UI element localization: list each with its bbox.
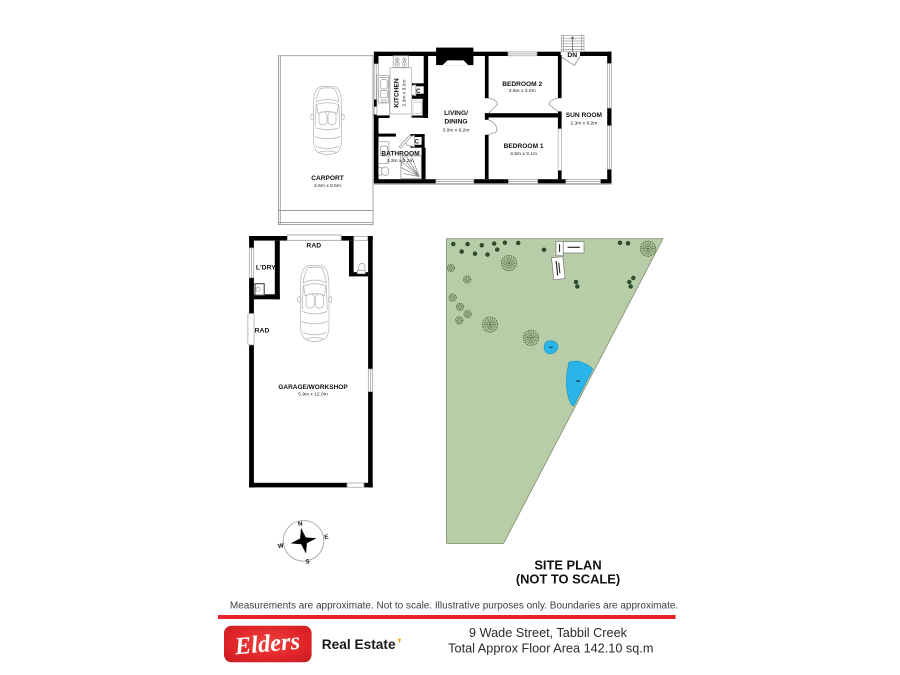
svg-text:C: C [415,139,420,146]
svg-text:5.9m x 12.0m: 5.9m x 12.0m [298,391,328,397]
svg-text:S: S [305,558,310,566]
svg-text:SUN ROOM: SUN ROOM [566,112,603,119]
svg-text:GARAGE/WORKSHOP: GARAGE/WORKSHOP [278,384,348,391]
svg-text:C: C [416,88,421,95]
svg-text:Total Approx Floor Area 142.10: Total Approx Floor Area 142.10 sq.m [448,641,653,655]
svg-text:CARPORT: CARPORT [311,175,344,182]
svg-text:DINING: DINING [444,118,467,125]
svg-text:3.0m x 6.2m: 3.0m x 6.2m [443,128,470,134]
svg-text:RAD: RAD [306,243,321,250]
svg-text:BATHROOM: BATHROOM [381,151,420,158]
svg-text:(NOT TO SCALE): (NOT TO SCALE) [516,571,620,586]
svg-text:3.6m x 3.1m: 3.6m x 3.1m [510,151,537,157]
svg-text:2.3m x 6.2m: 2.3m x 6.2m [570,120,597,126]
svg-text:4.6m x 8.5m: 4.6m x 8.5m [314,183,341,189]
svg-text:2.3m x 2.2m: 2.3m x 2.2m [387,158,414,164]
svg-text:LIVING/: LIVING/ [444,110,468,117]
svg-text:N: N [297,520,303,528]
svg-text:3.6m x 3.0m: 3.6m x 3.0m [509,88,536,94]
svg-text:E: E [324,534,329,542]
svg-text:BEDROOM 2: BEDROOM 2 [502,81,542,88]
svg-text:Elders: Elders [233,628,301,661]
svg-text:Real Estate: Real Estate [322,637,396,652]
svg-text:Measurements are approximate.: Measurements are approximate. Not to sca… [230,600,678,611]
svg-text:L'DRY: L'DRY [256,264,276,271]
svg-text:9 Wade Street, Tabbil Creek: 9 Wade Street, Tabbil Creek [469,626,628,640]
svg-text:2.3m x 3.0m: 2.3m x 3.0m [402,80,408,107]
svg-text:SITE PLAN: SITE PLAN [534,558,601,573]
svg-text:KITCHEN: KITCHEN [394,78,401,108]
svg-text:BEDROOM 1: BEDROOM 1 [504,143,544,150]
svg-text:RAD: RAD [255,327,270,334]
